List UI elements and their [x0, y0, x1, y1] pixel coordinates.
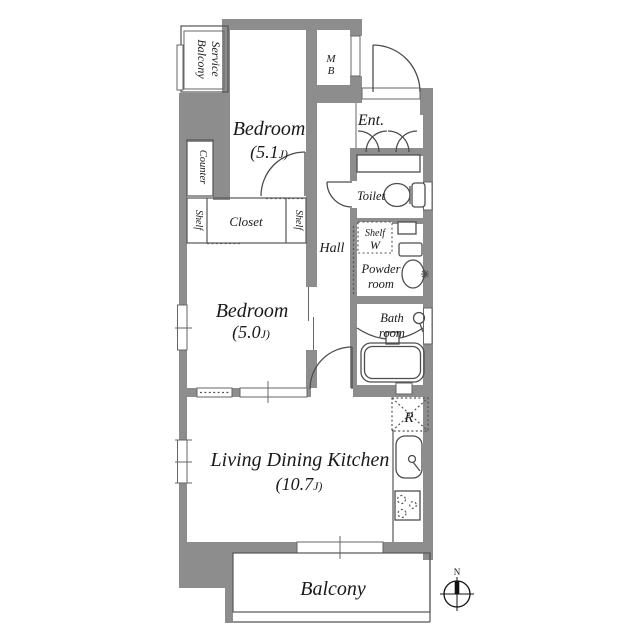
entrance-door-arc — [373, 45, 420, 92]
shelf-w-label-line2: W — [370, 238, 381, 252]
bath-step-box — [396, 383, 412, 394]
toilet-bowl — [384, 184, 410, 207]
floorplan-drawing: N Service Balcony Bedroom (5.1J) M B Ent… — [0, 0, 640, 639]
compass-north-label: N — [454, 567, 461, 577]
mb-vent-slit — [351, 36, 360, 76]
floorplan-canvas: N Service Balcony Bedroom (5.1J) M B Ent… — [0, 0, 640, 639]
bath-room-label-line1: Bath — [380, 311, 404, 325]
powder-room-label-line2: room — [368, 277, 394, 291]
bedroom1-label: Bedroom — [233, 118, 306, 140]
balcony-label: Balcony — [300, 578, 366, 600]
ldk-size: (10.7J) — [276, 474, 323, 495]
shelf-left-label: Shelf — [193, 210, 204, 231]
service-balcony-side-slit — [177, 45, 183, 90]
entrance-label: Ent. — [357, 112, 384, 129]
sink-faucet-handle — [413, 462, 420, 471]
refrigerator-label: R — [403, 410, 413, 426]
toilet-tank — [412, 183, 425, 207]
closet-label: Closet — [229, 214, 263, 229]
bedroom2-label: Bedroom — [216, 300, 289, 322]
window-bath-slit — [424, 308, 433, 344]
wall-segment — [350, 296, 433, 304]
wall-segment — [225, 588, 233, 623]
toilet-door-arc — [327, 182, 352, 207]
hall-ldk-door-opening — [311, 388, 353, 397]
powder-cabinet-lower — [399, 243, 422, 256]
bedroom2-sliding-door-opening — [306, 287, 317, 350]
washbasin — [402, 260, 424, 288]
compass: N — [440, 567, 474, 611]
wall-segment — [226, 19, 317, 30]
hall-label: Hall — [319, 241, 345, 256]
wall-segment — [179, 542, 233, 588]
bedroom2-size: (5.0J) — [232, 322, 270, 343]
bathtub-outer — [361, 343, 424, 382]
entrance-door-threshold — [362, 88, 420, 99]
bathtub-inner — [365, 347, 421, 379]
wall-segment — [317, 85, 362, 103]
bedroom2-ldk-partition-opening — [240, 388, 307, 397]
shoe-cabinet — [357, 155, 420, 172]
wall-segment — [179, 93, 230, 142]
faucet-asterisk — [421, 270, 429, 278]
wall-segment — [350, 385, 433, 397]
shower-faucet — [414, 313, 425, 324]
bath-room-label-line2: room — [379, 326, 405, 340]
stove-burner — [398, 510, 406, 518]
bedroom1-size: (5.1J) — [250, 142, 288, 163]
sink-faucet — [409, 456, 416, 463]
wall-segment — [213, 140, 230, 200]
stove-burner — [398, 496, 406, 504]
service-balcony-label-line1: Service — [209, 41, 223, 77]
powder-cabinet-upper — [398, 222, 416, 234]
shelf-right-label: Shelf — [293, 210, 304, 231]
toilet-door-opening — [350, 181, 357, 208]
powder-room-label-line1: Powder — [361, 262, 401, 276]
mb-label-line1: M — [325, 53, 336, 65]
stove-burner — [410, 502, 417, 509]
toilet-fixture — [384, 183, 425, 207]
mb-label-line2: B — [328, 65, 335, 77]
service-balcony-label-line2: Balcony — [195, 39, 209, 79]
ldk-label: Living Dining Kitchen — [210, 449, 390, 471]
toilet-label: Toilet — [357, 189, 386, 203]
wall-segment — [350, 19, 362, 36]
compass-north-needle — [455, 581, 460, 594]
counter-label: Counter — [197, 150, 208, 185]
